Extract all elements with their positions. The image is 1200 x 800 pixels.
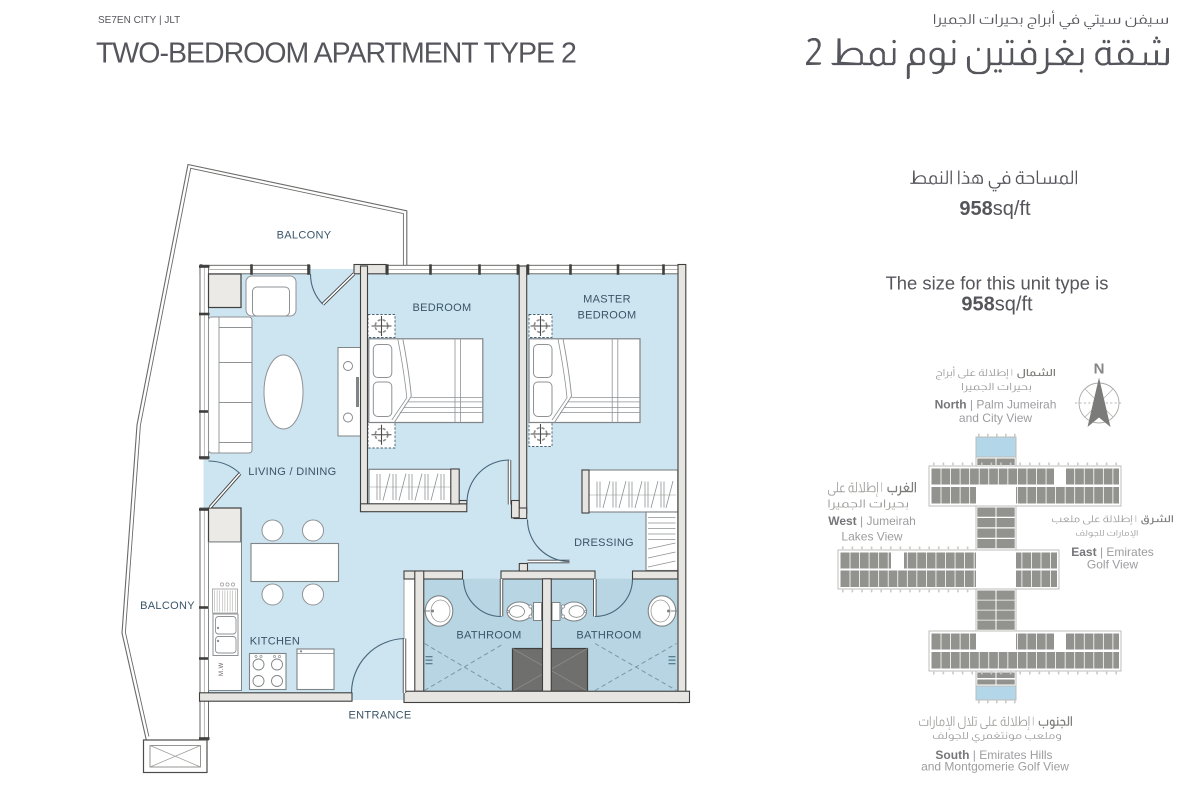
svg-text:LIVING / DINING: LIVING / DINING bbox=[248, 466, 336, 478]
svg-text:BALCONY: BALCONY bbox=[140, 600, 195, 612]
svg-text:SE7EN CITY | JLT: SE7EN CITY | JLT bbox=[98, 15, 180, 26]
svg-text:BATHROOM: BATHROOM bbox=[576, 630, 641, 642]
svg-text:KITCHEN: KITCHEN bbox=[250, 636, 300, 648]
svg-text:Golf View: Golf View bbox=[1087, 558, 1138, 572]
svg-text:ENTRANCE: ENTRANCE bbox=[349, 710, 412, 722]
svg-text:N: N bbox=[1094, 361, 1105, 378]
svg-text:DRESSING: DRESSING bbox=[574, 537, 634, 549]
svg-text:Lakes View: Lakes View bbox=[841, 530, 902, 544]
svg-text:958sq/ft: 958sq/ft bbox=[959, 198, 1031, 220]
svg-text:BEDROOM: BEDROOM bbox=[578, 309, 637, 321]
svg-text:West | Jumeirah: West | Jumeirah bbox=[828, 514, 916, 528]
svg-text:BATHROOM: BATHROOM bbox=[456, 630, 521, 642]
svg-text:The size for this unit type is: The size for this unit type is bbox=[886, 273, 1109, 294]
svg-text:MASTER: MASTER bbox=[583, 294, 631, 306]
svg-text:958sq/ft: 958sq/ft bbox=[961, 294, 1033, 316]
svg-text:BALCONY: BALCONY bbox=[277, 230, 332, 242]
svg-text:M.W: M.W bbox=[219, 662, 225, 676]
svg-text:BEDROOM: BEDROOM bbox=[413, 302, 472, 314]
svg-text:TWO-BEDROOM APARTMENT TYPE 2: TWO-BEDROOM APARTMENT TYPE 2 bbox=[96, 38, 576, 70]
svg-text:and Montgomerie Golf View: and Montgomerie Golf View bbox=[921, 760, 1069, 774]
svg-text:and City View: and City View bbox=[959, 411, 1032, 425]
svg-text:North | Palm Jumeirah: North | Palm Jumeirah bbox=[935, 398, 1057, 412]
